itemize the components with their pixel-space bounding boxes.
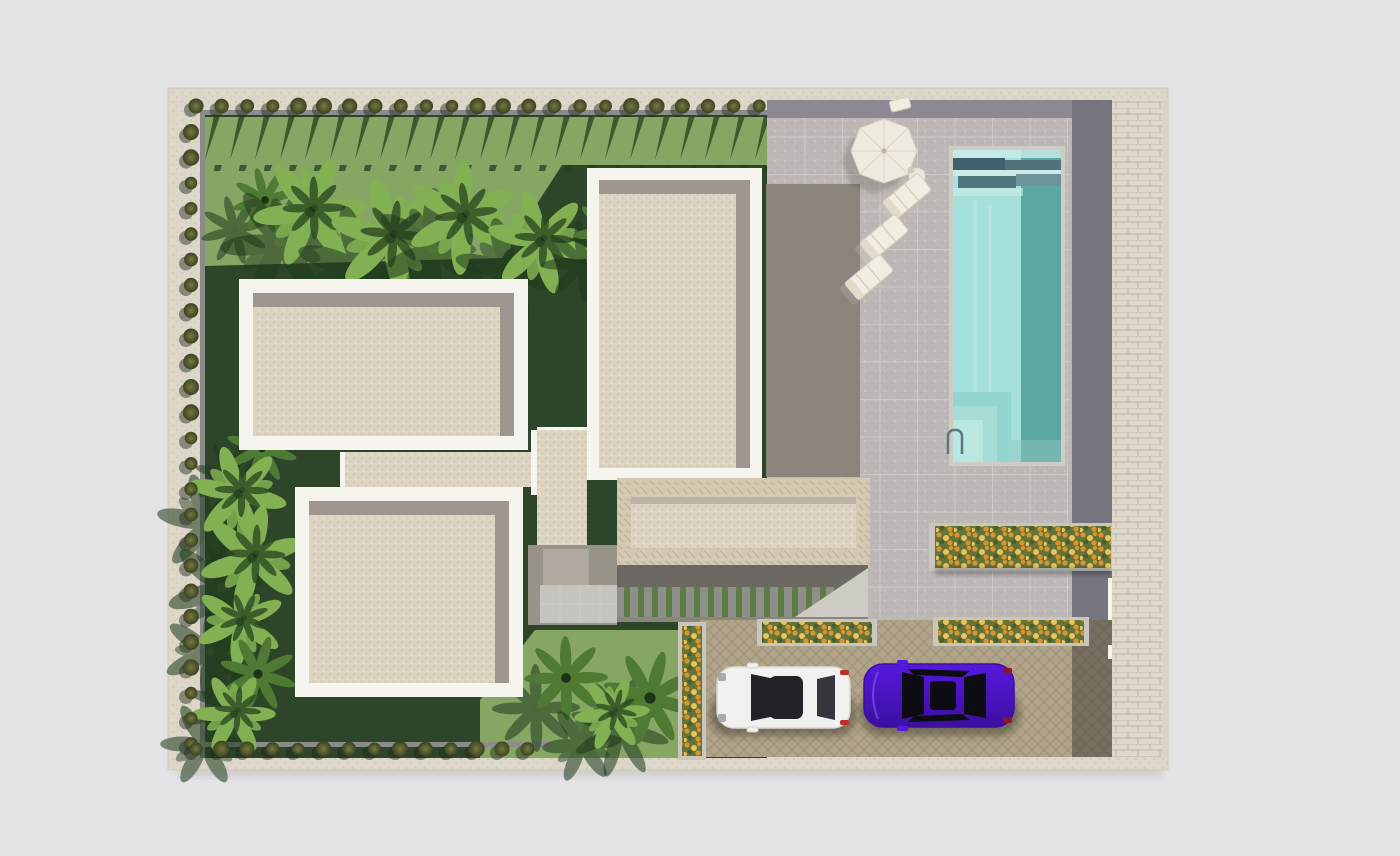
headlight <box>718 714 726 722</box>
rear-window <box>964 673 986 718</box>
hedge-bush <box>266 742 280 756</box>
roof <box>599 180 750 468</box>
hedge-bush <box>394 99 408 113</box>
hedge-bush <box>183 659 199 675</box>
hedge-bush <box>239 741 254 756</box>
taillight <box>1003 668 1012 674</box>
hedge-zigzag-shadows <box>205 117 767 171</box>
hedge-bush <box>184 278 198 292</box>
flower-bed <box>938 620 1084 643</box>
hedge-bush <box>184 482 197 495</box>
hedge-bush <box>468 741 484 757</box>
courtyard-mat <box>543 549 589 585</box>
hedge-bush <box>675 99 690 114</box>
hedge-bush <box>189 742 202 755</box>
hedge-bush <box>266 99 279 112</box>
connector-roof <box>345 452 537 487</box>
hedge-bush <box>521 99 536 114</box>
roof <box>309 501 509 683</box>
hedge-bush <box>446 100 459 113</box>
side-mirror <box>747 663 758 668</box>
roof-shadow-strip <box>500 307 514 436</box>
roof-shadow-strip <box>495 515 509 683</box>
headlight <box>718 673 726 681</box>
hedge-bush <box>727 99 741 113</box>
pool-reflection <box>953 188 1023 196</box>
hedge-bush <box>184 558 199 573</box>
hedge-bush <box>444 742 457 755</box>
hedge-bush <box>185 687 198 700</box>
taillight <box>1003 717 1012 723</box>
flower-bed <box>762 622 872 643</box>
hedge-bush <box>183 634 199 650</box>
patio-border-band-top <box>767 100 1112 118</box>
pool-reflection <box>958 176 1016 188</box>
building-left-block <box>239 279 528 450</box>
flower-bed <box>682 626 702 756</box>
hedge-bush <box>183 124 199 140</box>
hedge-bush <box>368 99 383 114</box>
hedge-bush <box>183 328 198 343</box>
roof <box>631 497 856 548</box>
building-square-block <box>295 487 523 697</box>
parasol-pole <box>882 149 887 154</box>
hedge-bush <box>316 98 332 114</box>
connector-edge <box>531 430 537 495</box>
hedge-bush <box>292 743 305 756</box>
roof-shadow-strip <box>631 497 856 504</box>
swimming-pool <box>948 146 1065 466</box>
pool-reflection <box>1016 174 1061 186</box>
hedge-bush <box>213 741 229 757</box>
hedge-bush <box>420 99 433 112</box>
pool-deep-band <box>1021 150 1061 462</box>
cobble-walkway <box>1112 100 1162 757</box>
hedge-bush <box>753 100 766 113</box>
building-stone-wing <box>617 478 870 567</box>
hedge-bush <box>214 99 228 113</box>
hedge-bush <box>599 100 612 113</box>
hedge-bush <box>184 533 198 547</box>
side-walkway <box>1112 100 1168 757</box>
hedge-bush <box>183 609 199 625</box>
hedge-bush <box>188 98 203 113</box>
hedge-bush <box>184 303 199 318</box>
sunroof <box>930 681 956 710</box>
walkway-edge <box>1162 100 1168 757</box>
hedge-bush <box>184 712 197 725</box>
hedge-bush <box>470 98 486 114</box>
hedge-bush <box>623 98 639 114</box>
roof-shadow-strip <box>599 180 750 194</box>
dark-terrace-slab <box>766 184 860 477</box>
hedge-bush <box>185 177 198 190</box>
hedge-bush <box>290 98 307 115</box>
hedge-bush <box>547 99 561 113</box>
hedge-bush <box>494 741 509 756</box>
hedge-bush <box>184 253 198 267</box>
hedge-bush <box>184 457 197 470</box>
hedge-bush <box>495 98 510 113</box>
hedge-bush <box>521 742 535 756</box>
glass-roof <box>769 676 803 719</box>
roof-shadow-strip <box>253 293 514 307</box>
side-mirror <box>747 727 758 732</box>
hedge-bush <box>368 742 381 755</box>
building-shadow-band <box>617 565 868 587</box>
hedge-bush <box>240 99 254 113</box>
hedge-bush <box>183 354 199 370</box>
site-plan-rendering <box>0 0 1400 856</box>
hedge-bush <box>418 742 433 757</box>
hedge-bush <box>183 149 199 165</box>
flower-bed <box>935 526 1111 568</box>
windshield <box>902 672 924 719</box>
hedge-bush <box>649 98 665 114</box>
taillight <box>840 670 849 675</box>
side-table-item <box>908 167 915 174</box>
roof-shadow-strip <box>736 194 750 468</box>
pool-step <box>953 420 983 462</box>
hedge-bush <box>185 432 198 445</box>
roof-shadow-strip <box>309 501 509 515</box>
hedge-bush <box>183 379 199 395</box>
hedge-bush <box>342 742 356 756</box>
hedge-bush <box>342 98 357 113</box>
hedge-bush <box>701 99 715 113</box>
hedge-bush <box>316 741 332 757</box>
connector-roof <box>537 430 587 547</box>
white-car <box>717 663 850 732</box>
rear-courtyard <box>528 545 617 625</box>
roof <box>253 293 514 436</box>
side-mirror <box>897 660 908 665</box>
hedge-bush <box>183 404 199 420</box>
building-main-block <box>587 168 762 480</box>
hedge-bush <box>184 508 198 522</box>
rear-window <box>817 675 835 720</box>
hedge-bush <box>184 202 197 215</box>
side-mirror <box>897 726 908 731</box>
taillight <box>840 720 849 725</box>
hedge-bush <box>392 741 408 757</box>
purple-car <box>864 660 1014 731</box>
hedge-bush <box>573 99 586 112</box>
hedge-bush <box>184 227 197 240</box>
hedge-bush <box>183 583 198 598</box>
pool-reflection <box>953 158 1005 170</box>
planter-shadow <box>935 568 1111 575</box>
pool-reflection <box>953 150 1061 158</box>
